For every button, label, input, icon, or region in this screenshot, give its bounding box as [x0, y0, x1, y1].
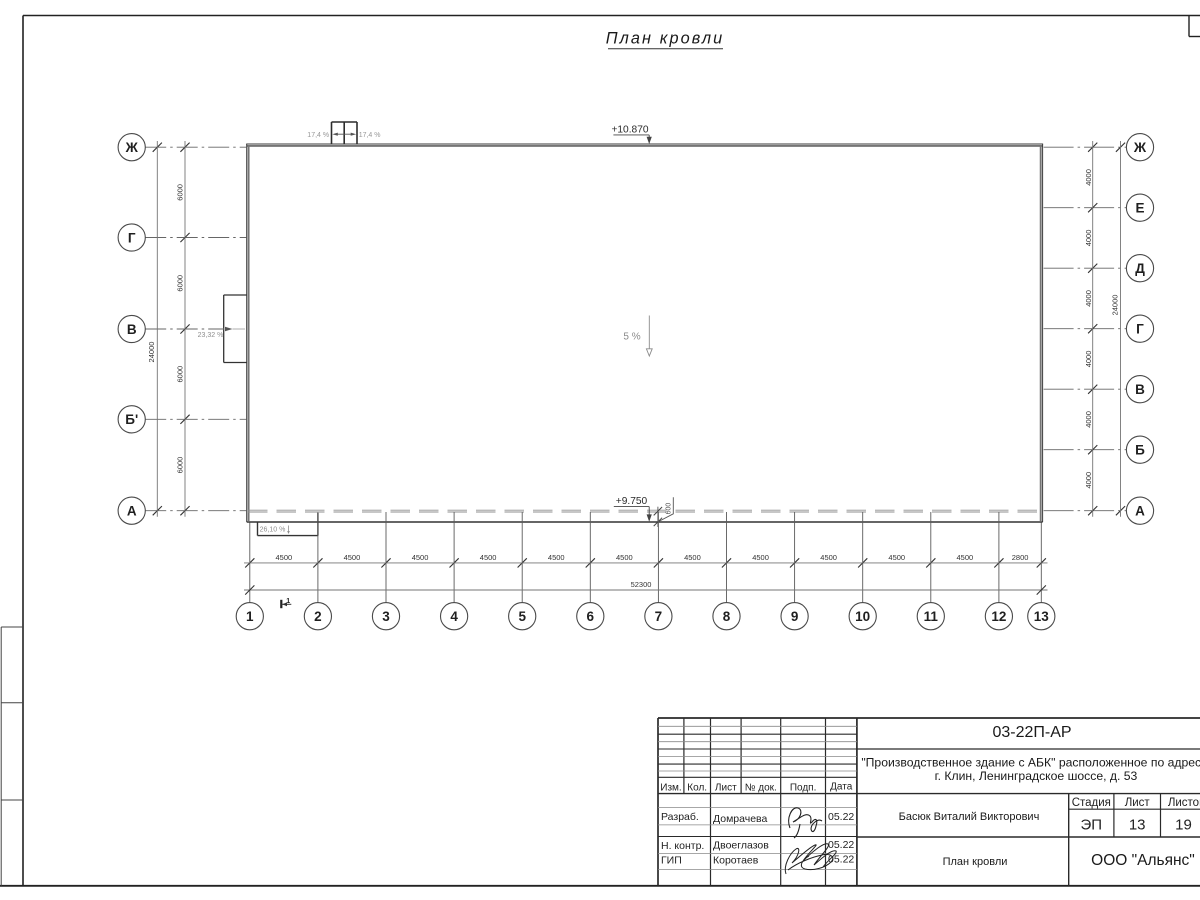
svg-text:Ж: Ж	[125, 140, 139, 155]
svg-text:+10.870: +10.870	[611, 124, 648, 135]
svg-text:5 %: 5 %	[623, 332, 640, 343]
svg-text:ООО "Альянс": ООО "Альянс"	[1091, 852, 1195, 869]
svg-text:6000: 6000	[175, 275, 184, 292]
svg-text:Кол.: Кол.	[687, 782, 707, 793]
svg-text:Листов: Листов	[1168, 797, 1200, 809]
svg-text:24000: 24000	[147, 342, 156, 363]
svg-text:Дата: Дата	[830, 781, 853, 792]
svg-text:4000: 4000	[1084, 230, 1093, 247]
svg-text:3: 3	[382, 609, 390, 624]
svg-text:В: В	[1135, 382, 1145, 397]
svg-text:ГИП: ГИП	[661, 854, 682, 866]
svg-text:4500: 4500	[548, 553, 565, 562]
svg-text:23,32 %: 23,32 %	[198, 332, 224, 339]
svg-text:№ док.: № док.	[745, 782, 777, 793]
svg-text:Б': Б'	[125, 412, 138, 427]
svg-text:03-22П-АР: 03-22П-АР	[992, 724, 1071, 741]
svg-text:4500: 4500	[957, 553, 974, 562]
svg-text:Д: Д	[1135, 261, 1145, 276]
svg-text:13: 13	[1129, 817, 1146, 834]
svg-text:4000: 4000	[1084, 472, 1093, 489]
svg-text:Разраб.: Разраб.	[661, 811, 699, 823]
svg-text:4000: 4000	[1084, 411, 1093, 428]
svg-text:Лист: Лист	[715, 782, 737, 793]
svg-text:+9.750: +9.750	[616, 496, 648, 507]
svg-text:26,10 %: 26,10 %	[260, 527, 286, 534]
svg-text:4000: 4000	[1084, 169, 1093, 186]
svg-text:6: 6	[587, 609, 595, 624]
svg-text:В: В	[127, 322, 137, 337]
svg-text:Б: Б	[1135, 442, 1145, 457]
svg-text:Лист: Лист	[1125, 797, 1151, 809]
svg-text:4500: 4500	[684, 553, 701, 562]
svg-text:План кровли: План кровли	[606, 30, 725, 48]
svg-text:17,4 %: 17,4 %	[307, 132, 329, 139]
svg-text:6000: 6000	[175, 457, 184, 474]
svg-text:Ж: Ж	[1133, 140, 1147, 155]
svg-text:4500: 4500	[276, 553, 293, 562]
svg-text:Г: Г	[1136, 321, 1144, 336]
svg-text:1: 1	[286, 598, 290, 605]
svg-text:6000: 6000	[175, 184, 184, 201]
svg-text:24000: 24000	[1110, 295, 1119, 316]
svg-text:7: 7	[655, 609, 663, 624]
svg-text:4500: 4500	[412, 553, 429, 562]
svg-text:10: 10	[855, 609, 870, 624]
svg-text:А: А	[127, 503, 137, 518]
svg-text:Подп.: Подп.	[790, 782, 817, 793]
svg-text:Изм.: Изм.	[660, 782, 681, 793]
svg-text:4500: 4500	[616, 553, 633, 562]
svg-text:17,4 %: 17,4 %	[359, 132, 381, 139]
svg-text:4000: 4000	[1084, 290, 1093, 307]
svg-text:4500: 4500	[752, 553, 769, 562]
svg-text:2: 2	[314, 609, 322, 624]
svg-text:1: 1	[246, 609, 254, 624]
svg-text:2800: 2800	[1012, 553, 1029, 562]
svg-text:4500: 4500	[820, 553, 837, 562]
svg-text:Н. контр.: Н. контр.	[661, 840, 704, 852]
svg-text:Е: Е	[1135, 200, 1144, 215]
svg-text:9: 9	[791, 609, 799, 624]
svg-text:6000: 6000	[175, 366, 184, 383]
svg-text:600: 600	[666, 503, 673, 515]
svg-text:4500: 4500	[480, 553, 497, 562]
svg-text:13: 13	[1034, 609, 1050, 624]
svg-text:11: 11	[924, 609, 939, 624]
svg-text:52300: 52300	[631, 580, 652, 589]
svg-text:05.22: 05.22	[828, 854, 854, 866]
svg-text:19: 19	[1175, 817, 1192, 834]
svg-text:Г: Г	[128, 230, 136, 245]
svg-text:05.22: 05.22	[828, 839, 854, 851]
svg-text:г. Клин, Ленинградское шоссе,: г. Клин, Ленинградское шоссе, д. 53	[935, 769, 1138, 783]
svg-text:Коротаев: Коротаев	[713, 854, 759, 866]
svg-text:05.22: 05.22	[828, 811, 854, 823]
svg-text:Домрачева: Домрачева	[713, 813, 768, 825]
svg-text:Стадия: Стадия	[1072, 797, 1111, 809]
svg-text:Двоеглазов: Двоеглазов	[713, 840, 769, 852]
svg-text:Басюк Виталий Викторович: Басюк Виталий Викторович	[899, 811, 1040, 823]
svg-text:4: 4	[450, 609, 458, 624]
svg-text:12: 12	[991, 609, 1006, 624]
svg-text:5: 5	[518, 609, 526, 624]
svg-text:ЭП: ЭП	[1081, 817, 1103, 834]
svg-text:План кровли: План кровли	[943, 856, 1008, 868]
svg-text:4000: 4000	[1084, 351, 1093, 368]
svg-text:4500: 4500	[888, 553, 905, 562]
svg-text:4500: 4500	[344, 553, 361, 562]
svg-text:"Производственное здание с АБК: "Производственное здание с АБК" располож…	[861, 756, 1200, 770]
svg-text:А: А	[1135, 503, 1145, 518]
svg-text:8: 8	[723, 609, 731, 624]
